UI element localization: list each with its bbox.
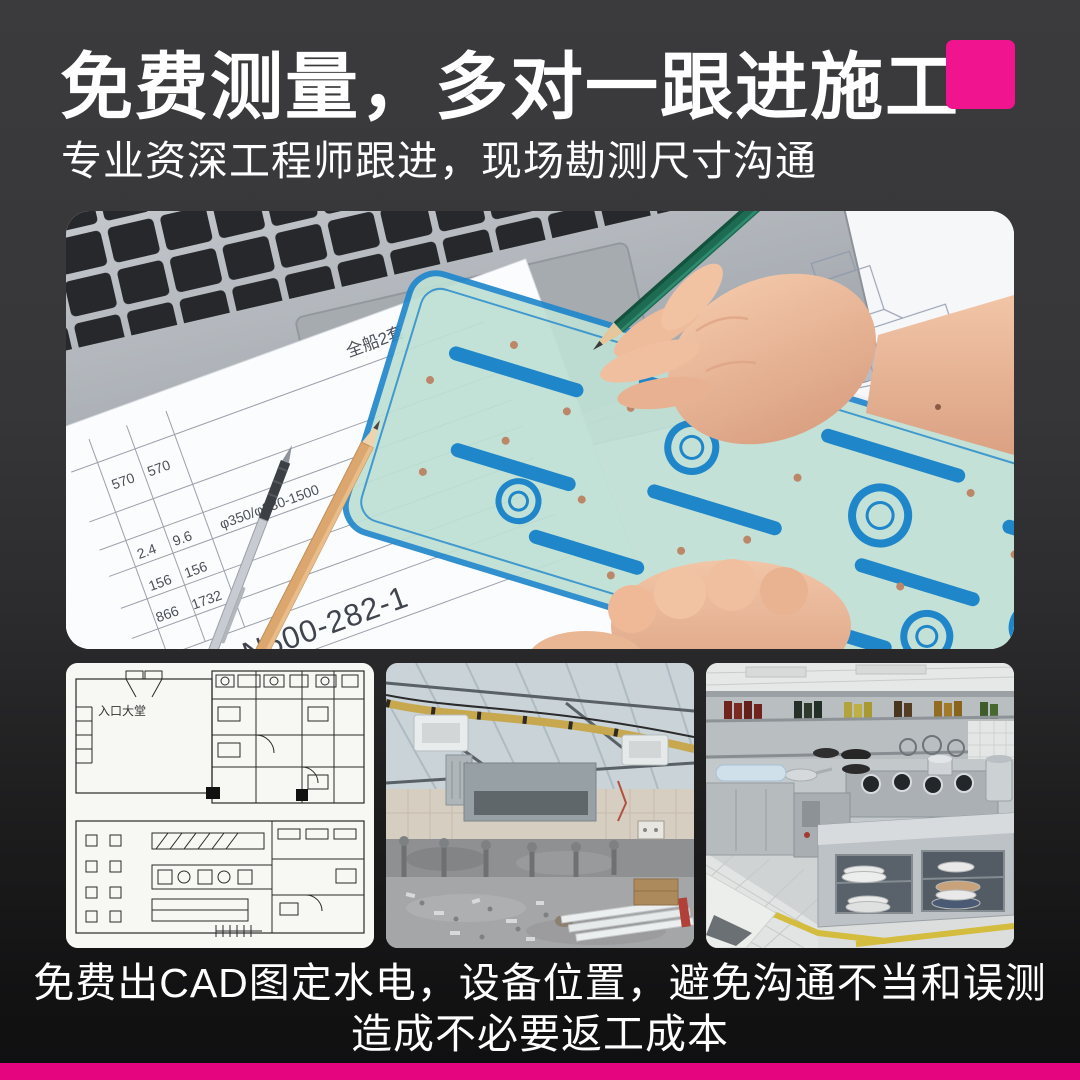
construction-site-illustration (386, 663, 694, 948)
hero-photo-blueprint-drafting: 570 570 2.4 9.6 φ350/φ330-1500 156 156 8… (66, 211, 1014, 649)
gallery-item-finished-kitchen (706, 663, 1014, 948)
caption-line-1: 免费出CAD图定水电，设备位置，避免沟通不当和误测 (0, 958, 1080, 1009)
gallery-row: 入口大堂 (66, 663, 1014, 948)
footer-accent-bar (0, 1063, 1080, 1080)
hero-photo-illustration: 570 570 2.4 9.6 φ350/φ330-1500 156 156 8… (66, 211, 1014, 649)
finished-kitchen-illustration (706, 663, 1014, 948)
gallery-item-construction-site (386, 663, 694, 948)
cad-floorplan-illustration: 入口大堂 (66, 663, 374, 948)
promo-banner: 免费测量，多对一跟进施工 专业资深工程师跟进，现场勘测尺寸沟通 (0, 0, 1080, 1080)
accent-square-decor (946, 40, 1015, 109)
page-title: 免费测量，多对一跟进施工 (60, 28, 960, 134)
page-subtitle: 专业资深工程师跟进，现场勘测尺寸沟通 (61, 127, 817, 187)
caption-line-2: 造成不必要返工成本 (0, 1009, 1080, 1060)
floorplan-lobby-label: 入口大堂 (98, 704, 146, 718)
caption: 免费出CAD图定水电，设备位置，避免沟通不当和误测 造成不必要返工成本 (0, 958, 1080, 1060)
gallery-item-cad-floorplan: 入口大堂 (66, 663, 374, 948)
